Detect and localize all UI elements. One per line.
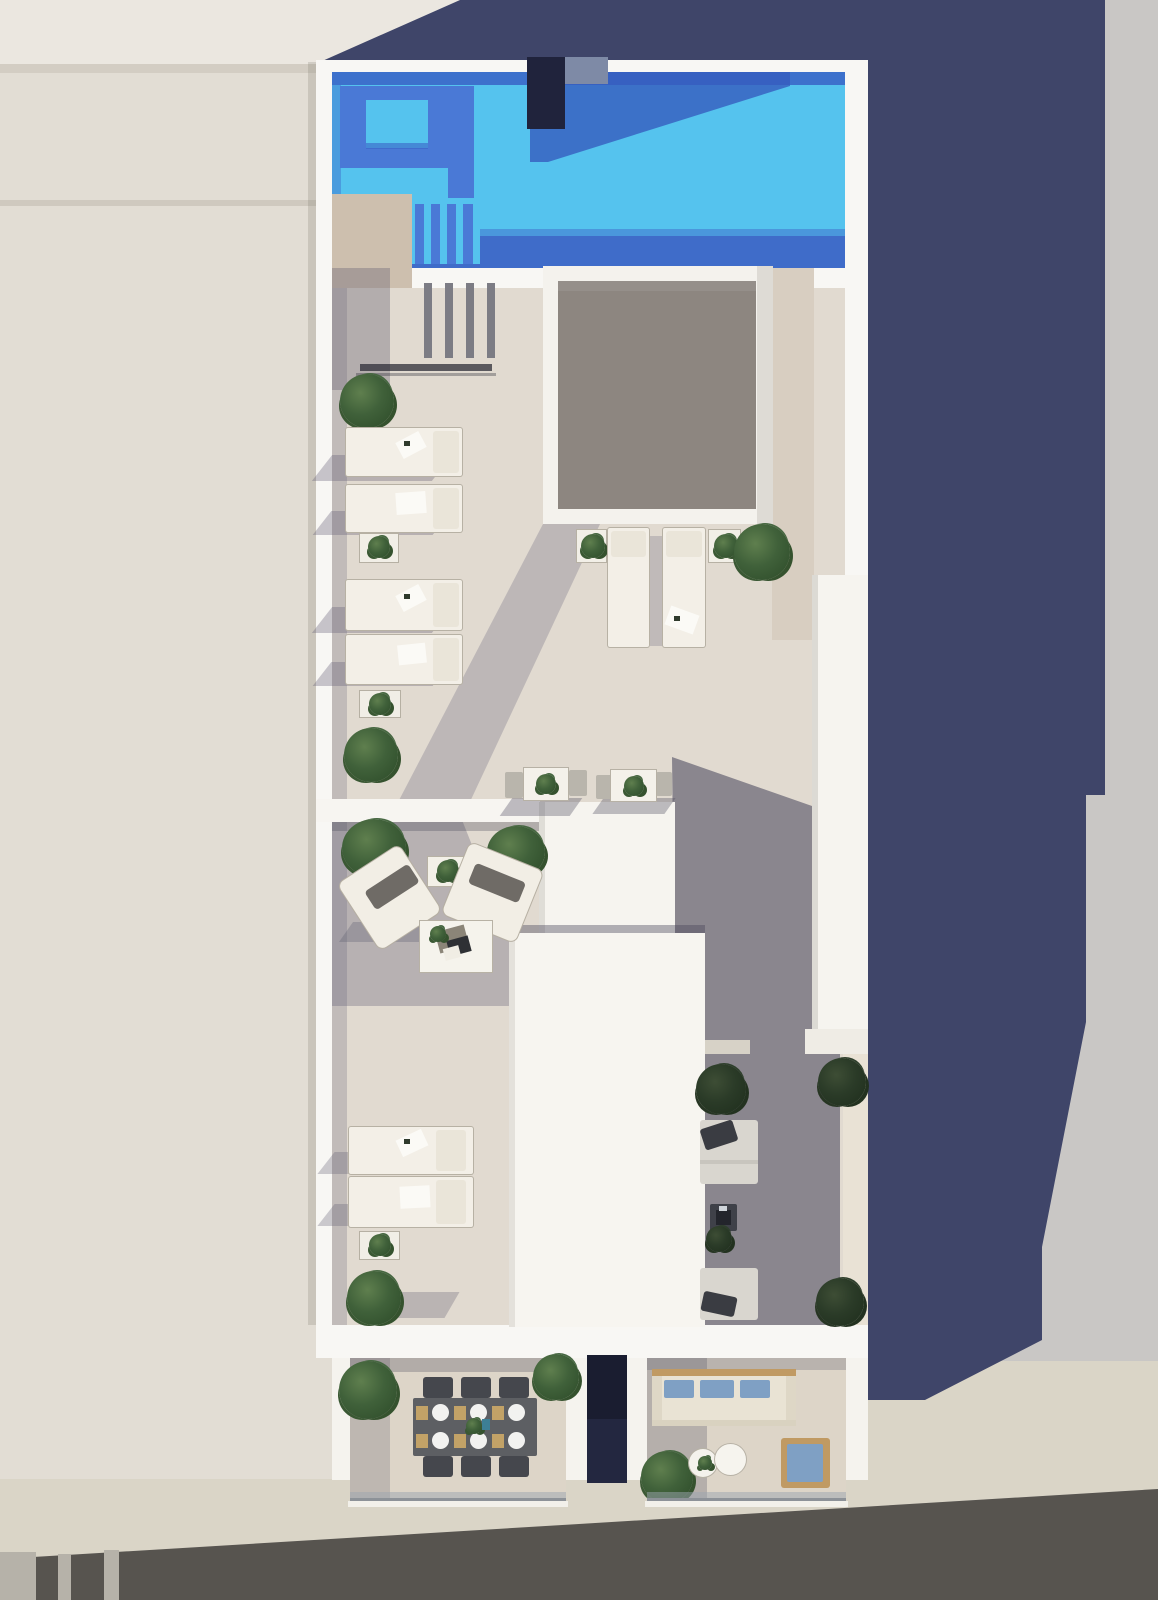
potted-plant (368, 536, 390, 558)
shrub (818, 1058, 866, 1106)
sofa-armrest (786, 1376, 796, 1426)
bistro-chair (656, 772, 672, 796)
table-decor-plant (430, 926, 446, 942)
shrub (340, 374, 394, 428)
balcony-shrub (533, 1354, 579, 1400)
shrub (344, 728, 398, 782)
bistro-chair (569, 770, 587, 796)
sofa-wood-back (652, 1369, 796, 1376)
stair-glass-grid (587, 1419, 627, 1483)
balcony-sill-left (348, 1501, 568, 1507)
towel (395, 491, 426, 515)
potted-plant (706, 1226, 732, 1252)
roof-box-east-cap (805, 1029, 868, 1054)
lounger-backrest (433, 431, 459, 473)
deck-bench (705, 1040, 750, 1054)
roof-box-main (509, 933, 705, 1327)
road-concrete-patch (0, 1552, 36, 1600)
table-decor-plant (698, 1456, 712, 1470)
chimney-block (527, 57, 565, 129)
sofa-front-edge (652, 1420, 796, 1426)
placemat (492, 1434, 504, 1448)
shrub (734, 524, 790, 580)
pool-spa-inner (366, 100, 428, 148)
beige-wall-seam-soft (0, 200, 316, 206)
beige-wall-seam (0, 64, 330, 73)
skylight-void-highlight (558, 281, 756, 291)
potted-plant (369, 693, 391, 715)
stair-glass-dark (587, 1355, 627, 1419)
lounger-backrest (433, 488, 459, 529)
balcony-shrub (339, 1361, 397, 1419)
lounger-backrest (436, 1130, 466, 1171)
placemat (454, 1406, 466, 1420)
bistro-chair (505, 772, 523, 798)
shrub (347, 1271, 401, 1325)
pool-step-bar (431, 204, 440, 264)
sofa-cushion (664, 1380, 694, 1398)
pool-step-bar (447, 204, 456, 264)
pergola-post (424, 283, 432, 358)
shrub (696, 1064, 746, 1114)
dinner-plate (508, 1432, 525, 1449)
lounger-backrest (611, 531, 646, 557)
dinner-plate (470, 1432, 487, 1449)
towel-accent (674, 616, 680, 621)
dining-chair (499, 1456, 529, 1477)
pergola-post (466, 283, 474, 358)
sofa-armrest (652, 1376, 662, 1426)
pool-spa-inner-line (366, 143, 428, 149)
potted-plant (581, 534, 605, 558)
balcony-pier (627, 1358, 647, 1480)
road-concrete-strip (58, 1554, 71, 1600)
stair-rail-dark (360, 364, 492, 371)
east-deck-wood (772, 268, 814, 640)
potted-plant (369, 1234, 391, 1256)
lounger-backrest (666, 531, 702, 557)
wood-armchair-cushion (787, 1444, 823, 1482)
dinner-plate (508, 1404, 525, 1421)
chimney-cap (565, 57, 608, 84)
dinner-plate (432, 1432, 449, 1449)
towel (399, 1185, 430, 1209)
dining-chair (461, 1377, 491, 1398)
table-bottle (482, 1419, 490, 1430)
roof-box-upper-edge (539, 802, 545, 933)
pool-divider-shadow (448, 86, 474, 206)
lounger-backrest (436, 1180, 466, 1224)
pergola-post (487, 283, 495, 358)
dining-chair (499, 1377, 529, 1398)
pool-step-bar (415, 204, 424, 264)
placemat (416, 1406, 428, 1420)
skylight-frame-shade (757, 266, 773, 524)
roof-box-east-edge (812, 575, 818, 1047)
roof-box-main-edge (509, 933, 515, 1327)
towel-accent (404, 1139, 410, 1144)
towel-accent (404, 594, 410, 599)
daybed-seam (700, 1160, 758, 1164)
lounger-backrest (433, 638, 459, 681)
round-side-table (714, 1443, 747, 1476)
lounger-backrest (433, 583, 459, 627)
sofa-cushion (740, 1380, 770, 1398)
dining-chair (423, 1377, 453, 1398)
sofa-cushion (700, 1380, 734, 1398)
roof-box-east (812, 575, 868, 1047)
terrace-outer-shadow (308, 62, 316, 1325)
balcony-pier (846, 1358, 868, 1480)
dining-chair (423, 1456, 453, 1477)
skylight-void (558, 281, 756, 509)
shrub (816, 1278, 864, 1326)
fire-table-detail (719, 1206, 727, 1211)
balcony-sill-right (645, 1501, 848, 1507)
road-concrete-strip (104, 1550, 119, 1600)
fire-table-inner (716, 1210, 731, 1225)
roof-box-upper (539, 802, 675, 933)
pool-step-bar (463, 204, 473, 264)
placemat (454, 1434, 466, 1448)
towel-accent (404, 441, 410, 446)
potted-plant (624, 776, 644, 796)
placemat (492, 1406, 504, 1420)
towel (397, 643, 427, 666)
pergola-post (445, 283, 453, 358)
table-centerpiece (466, 1418, 482, 1434)
placemat (416, 1434, 428, 1448)
dining-chair (461, 1456, 491, 1477)
potted-plant (536, 774, 556, 794)
dinner-plate (432, 1404, 449, 1421)
rooftop-terrace-render (0, 0, 1158, 1600)
